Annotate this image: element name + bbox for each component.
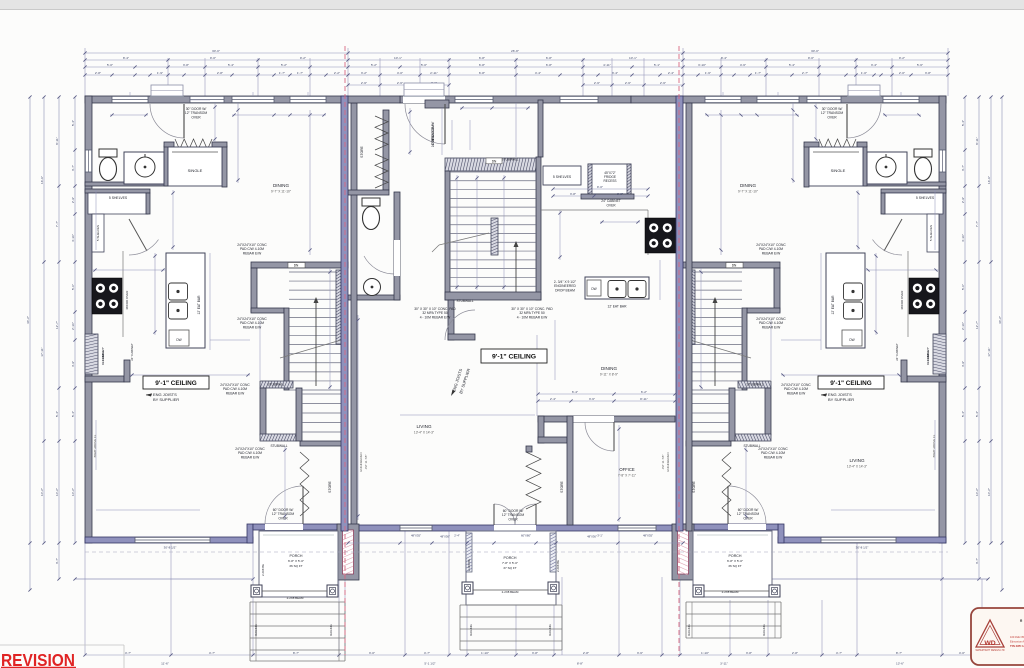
svg-text:2'-2": 2'-2": [334, 71, 340, 75]
svg-text:DROP BEAM: DROP BEAM: [555, 288, 575, 292]
svg-text:4'-6": 4'-6": [740, 63, 746, 67]
svg-text:9'-2": 9'-2": [899, 56, 905, 60]
svg-text:STORE: STORE: [692, 480, 696, 492]
svg-text:5'-4": 5'-4": [55, 411, 59, 417]
svg-text:4'-7": 4'-7": [424, 651, 430, 655]
svg-text:7'-8" X 5'-0": 7'-8" X 5'-0": [502, 561, 518, 565]
svg-text:5'-4": 5'-4": [71, 411, 75, 417]
svg-text:10'-2": 10'-2": [40, 488, 44, 496]
svg-text:2'-0": 2'-0": [899, 71, 905, 75]
svg-text:2'-10": 2'-10": [71, 322, 75, 330]
svg-text:RAILING: RAILING: [329, 623, 333, 635]
svg-text:5'-2": 5'-2": [281, 63, 287, 67]
svg-text:STUBWALL: STUBWALL: [270, 444, 287, 448]
svg-text:2'-8": 2'-8": [217, 71, 223, 75]
svg-text:3'-6": 3'-6": [589, 397, 595, 401]
svg-text:36 SQ FT: 36 SQ FT: [289, 564, 303, 568]
svg-text:DINING: DINING: [273, 183, 290, 188]
svg-text:DN: DN: [294, 264, 299, 268]
svg-text:RECESS: RECESS: [926, 353, 930, 365]
svg-text:16'-6": 16'-6": [40, 176, 44, 184]
svg-text:STORE: STORE: [328, 480, 332, 492]
svg-text:BSMT ABOVE FL: BSMT ABOVE FL: [932, 434, 936, 457]
svg-text:2'-8": 2'-8": [792, 651, 798, 655]
svg-text:2-2X8 BEAM: 2-2X8 BEAM: [722, 590, 739, 594]
svg-text:OVER: OVER: [278, 516, 288, 520]
svg-text:LIVING: LIVING: [416, 424, 431, 429]
svg-text:JST 11 7/8": JST 11 7/8": [364, 455, 368, 470]
svg-text:REBAR E/W: REBAR E/W: [243, 325, 262, 329]
svg-text:44'-2": 44'-2": [998, 316, 1002, 324]
svg-text:8'-7": 8'-7": [896, 651, 902, 655]
svg-text:9'-0": 9'-0": [597, 185, 603, 189]
svg-text:OVER: OVER: [606, 204, 616, 208]
svg-text:3'-6": 3'-6": [637, 651, 643, 655]
svg-text:2'-7": 2'-7": [802, 71, 808, 75]
svg-text:48"X36": 48"X36": [440, 535, 450, 539]
svg-text:5 SHELVES: 5 SHELVES: [96, 225, 100, 241]
svg-text:3'-1": 3'-1": [597, 534, 603, 538]
svg-text:2-2X8 BE: 2-2X8 BE: [556, 560, 560, 572]
svg-text:RAILING: RAILING: [548, 623, 552, 635]
svg-text:6'-8" X 5'-0": 6'-8" X 5'-0": [288, 559, 304, 563]
svg-text:13'-4" X 14'-3": 13'-4" X 14'-3": [847, 464, 867, 468]
svg-text:DW: DW: [176, 338, 181, 342]
svg-text:4'-11": 4'-11": [603, 63, 611, 67]
svg-text:16'-6": 16'-6": [987, 176, 991, 184]
svg-text:PORCH: PORCH: [290, 554, 303, 558]
svg-text:4'-7": 4'-7": [209, 651, 215, 655]
svg-text:3'-10": 3'-10": [698, 63, 706, 67]
svg-text:4'-7": 4'-7": [125, 651, 131, 655]
svg-text:30'-8 1/2": 30'-8 1/2": [856, 546, 869, 550]
svg-text:10'-1": 10'-1": [629, 56, 637, 60]
svg-text:9'-0": 9'-0": [210, 56, 216, 60]
svg-text:9'-1" CEILING: 9'-1" CEILING: [830, 380, 872, 387]
svg-text:60"X80": 60"X80": [521, 534, 531, 538]
svg-text:4'-7": 4'-7": [836, 651, 842, 655]
svg-text:3'-8": 3'-8": [183, 63, 189, 67]
svg-text:8'-11": 8'-11": [55, 137, 59, 145]
svg-text:6'-8": 6'-8": [546, 56, 552, 60]
svg-text:4 - 10M REBAR E/W: 4 - 10M REBAR E/W: [517, 315, 548, 319]
svg-text:STUBWALL: STUBWALL: [743, 444, 760, 448]
svg-text:2'-9": 2'-9": [71, 197, 75, 203]
svg-text:1'-7": 1'-7": [755, 71, 761, 75]
svg-text:10'-1": 10'-1": [394, 56, 402, 60]
svg-text:9'-1" CEILING: 9'-1" CEILING: [492, 353, 536, 360]
svg-text:SINGLE: SINGLE: [188, 168, 203, 173]
svg-text:REBAR E/W: REBAR E/W: [787, 391, 806, 395]
svg-text:DN: DN: [732, 264, 737, 268]
svg-text:5'-4": 5'-4": [961, 120, 965, 126]
svg-text:13'-6": 13'-6": [896, 662, 904, 666]
svg-text:WATERTIGHT DESIGN LTD: WATERTIGHT DESIGN LTD: [975, 649, 1004, 652]
svg-text:9'-1" CEILING: 9'-1" CEILING: [155, 380, 197, 387]
svg-text:3'-8": 3'-8": [570, 192, 576, 196]
svg-text:3'-7": 3'-7": [961, 165, 965, 171]
svg-text:BY SUPPLIER: BY SUPPLIER: [828, 397, 854, 402]
svg-text:6'-4": 6'-4": [572, 390, 578, 394]
svg-text:9'-2": 9'-2": [300, 56, 306, 60]
svg-text:5'-0": 5'-0": [961, 284, 965, 290]
svg-text:RAILING: RAILING: [254, 623, 258, 635]
svg-text:BY SUPPLIER: BY SUPPLIER: [153, 397, 179, 402]
svg-text:2-2X8 BEAM: 2-2X8 BEAM: [287, 596, 304, 600]
svg-text:9'-7" X 11'-10": 9'-7" X 11'-10": [738, 189, 758, 193]
svg-text:RAILING: RAILING: [687, 623, 691, 635]
svg-text:6'-8": 6'-8": [479, 63, 485, 67]
svg-text:STUBWALL: STUBWALL: [746, 383, 763, 387]
svg-text:37 SQ FT: 37 SQ FT: [503, 566, 517, 570]
svg-text:2'-4": 2'-4": [668, 71, 674, 75]
svg-text:5'-2": 5'-2": [371, 63, 377, 67]
svg-text:OVER: OVER: [827, 115, 837, 119]
svg-text:1'-6": 1'-6": [705, 71, 711, 75]
svg-text:3'-2": 3'-2": [361, 71, 367, 75]
svg-text:36 SQ FT: 36 SQ FT: [728, 564, 742, 568]
svg-text:8'-7": 8'-7": [293, 651, 299, 655]
svg-text:24" CABINET: 24" CABINET: [130, 343, 134, 361]
svg-text:RAILING: RAILING: [469, 623, 473, 635]
svg-text:PORCH: PORCH: [729, 554, 742, 558]
svg-text:5'-0": 5'-0": [421, 63, 427, 67]
svg-text:30'-0": 30'-0": [811, 49, 819, 53]
svg-text:3'-4": 3'-4": [871, 63, 877, 67]
svg-text:4'-0": 4'-0": [959, 651, 965, 655]
svg-text:STUBWALL: STUBWALL: [501, 158, 518, 162]
svg-text:3'-8": 3'-8": [746, 651, 752, 655]
svg-text:5'-4": 5'-4": [71, 120, 75, 126]
svg-text:3'-0": 3'-0": [369, 651, 375, 655]
svg-text:24" CABINET: 24" CABINET: [895, 343, 899, 361]
svg-text:5 SHELVES: 5 SHELVES: [916, 196, 935, 200]
svg-text:2'-6": 2'-6": [361, 81, 367, 85]
svg-text:STUBWALL: STUBWALL: [456, 299, 473, 303]
svg-text:2'-4": 2'-4": [454, 534, 460, 538]
svg-text:1'-7": 1'-7": [279, 71, 285, 75]
svg-text:REBAR E/W: REBAR E/W: [241, 455, 260, 459]
svg-text:3'-4": 3'-4": [612, 71, 618, 75]
svg-text:8'-11": 8'-11": [975, 137, 979, 145]
svg-text:DINING: DINING: [740, 183, 757, 188]
svg-text:REBAR E/W: REBAR E/W: [762, 325, 781, 329]
svg-text:5'-0": 5'-0": [71, 284, 75, 290]
svg-text:5 SHELVES: 5 SHELVES: [929, 225, 933, 241]
svg-text:OVER: OVER: [743, 516, 753, 520]
svg-text:2-2X8 BEAM: 2-2X8 BEAM: [502, 590, 519, 594]
svg-text:44'-2": 44'-2": [26, 316, 30, 324]
svg-text:9'-0": 9'-0": [808, 56, 814, 60]
svg-text:T5N 3W5 CA: T5N 3W5 CA: [1010, 644, 1024, 648]
svg-text:2-2X8 BE: 2-2X8 BE: [467, 559, 471, 571]
svg-text:1'-10": 1'-10": [481, 651, 489, 655]
svg-text:REVISION: REVISION: [1, 650, 75, 668]
svg-text:1'-10": 1'-10": [701, 651, 709, 655]
svg-text:OVER: OVER: [431, 135, 435, 145]
svg-text:5'-1": 5'-1": [654, 63, 660, 67]
svg-text:1'-9": 1'-9": [157, 71, 163, 75]
svg-text:DINING: DINING: [601, 366, 618, 371]
svg-text:7'-7": 7'-7": [975, 221, 979, 227]
svg-text:STORE: STORE: [560, 480, 564, 492]
svg-text:DW: DW: [849, 338, 854, 342]
svg-text:STUBWALL: STUBWALL: [267, 383, 284, 387]
svg-text:2'-6": 2'-6": [397, 81, 403, 85]
svg-text:MICRO OVER: MICRO OVER: [125, 291, 129, 310]
svg-text:2'-4": 2'-4": [550, 397, 556, 401]
svg-text:PORCH: PORCH: [504, 556, 517, 560]
svg-text:17'-11": 17'-11": [40, 347, 44, 356]
svg-text:4 - 10M REBAR E/W: 4 - 10M REBAR E/W: [420, 315, 451, 319]
svg-text:5'-4": 5'-4": [961, 411, 965, 417]
svg-text:3'-7": 3'-7": [71, 165, 75, 171]
svg-text:3'-11": 3'-11": [720, 662, 728, 666]
svg-text:30'-8 1/2": 30'-8 1/2": [164, 546, 177, 550]
svg-text:10'-2": 10'-2": [55, 488, 59, 496]
svg-text:3'-8": 3'-8": [925, 71, 931, 75]
svg-text:5'-4": 5'-4": [789, 63, 795, 67]
svg-text:12'-7": 12'-7": [55, 321, 59, 329]
svg-text:REBAR E/W: REBAR E/W: [762, 251, 781, 255]
svg-text:2'-8": 2'-8": [583, 651, 589, 655]
svg-text:100 AVE NW: 100 AVE NW: [1010, 635, 1024, 639]
svg-text:OVER: OVER: [508, 517, 518, 521]
svg-text:8'-8": 8'-8": [577, 662, 583, 666]
svg-text:4'-9": 4'-9": [961, 361, 965, 367]
svg-text:3'-7": 3'-7": [55, 558, 59, 564]
svg-text:4'-9": 4'-9": [71, 361, 75, 367]
svg-text:REBAR E/W: REBAR E/W: [764, 455, 783, 459]
svg-text:17'-11": 17'-11": [987, 347, 991, 356]
svg-text:2'-11": 2'-11": [430, 71, 438, 75]
svg-text:Edmonton AB: Edmonton AB: [1010, 640, 1024, 644]
svg-text:SINGLE: SINGLE: [831, 168, 846, 173]
svg-text:6'-8": 6'-8": [479, 71, 485, 75]
svg-text:11'-6": 11'-6": [161, 662, 169, 666]
svg-text:12' EAT BAR: 12' EAT BAR: [197, 295, 201, 315]
svg-text:DW: DW: [591, 287, 596, 291]
svg-text:6'-8" X 5'-0": 6'-8" X 5'-0": [727, 559, 743, 563]
svg-text:10'-2": 10'-2": [987, 488, 991, 496]
svg-text:6'-8": 6'-8": [546, 63, 552, 67]
svg-text:1'-0": 1'-0": [861, 71, 867, 75]
svg-text:12'-7": 12'-7": [975, 321, 979, 329]
svg-text:MICRO OVER: MICRO OVER: [900, 291, 904, 310]
svg-text:30'-0": 30'-0": [212, 49, 220, 53]
svg-text:3'-8": 3'-8": [532, 651, 538, 655]
svg-text:2'-8": 2'-8": [95, 71, 101, 75]
svg-text:DN: DN: [492, 160, 497, 164]
svg-text:6'-2": 6'-2": [641, 390, 647, 394]
svg-text:2-2X8 BE: 2-2X8 BE: [261, 564, 265, 576]
svg-text:5'-6": 5'-6": [917, 63, 923, 67]
svg-text:REBAR E/W: REBAR E/W: [226, 391, 245, 395]
svg-text:7'-7": 7'-7": [55, 221, 59, 227]
svg-text:OFFICE: OFFICE: [619, 467, 635, 472]
svg-text:10'-2": 10'-2": [975, 488, 979, 496]
svg-text:2'-6": 2'-6": [594, 81, 600, 85]
svg-text:5'-0": 5'-0": [107, 63, 113, 67]
svg-text:2'-6": 2'-6": [625, 81, 631, 85]
svg-text:48"X35": 48"X35": [643, 534, 653, 538]
svg-text:ENGINEERED: ENGINEERED: [359, 452, 363, 471]
svg-text:8'-11": 8'-11": [640, 397, 648, 401]
svg-text:4'-0": 4'-0": [397, 71, 403, 75]
svg-text:26'-8": 26'-8": [511, 49, 519, 53]
svg-text:STORE: STORE: [360, 145, 364, 157]
svg-text:5'-1 1/2": 5'-1 1/2": [424, 662, 435, 666]
svg-text:LIVING: LIVING: [849, 458, 864, 463]
svg-text:8'-4": 8'-4": [123, 56, 129, 60]
svg-text:3'-7": 3'-7": [975, 558, 979, 564]
svg-text:2'-6": 2'-6": [660, 81, 666, 85]
svg-text:ENGINEERED: ENGINEERED: [666, 452, 670, 471]
svg-text:2'-9": 2'-9": [961, 197, 965, 203]
svg-text:1'-7": 1'-7": [297, 71, 303, 75]
svg-text:12' EAT BAR: 12' EAT BAR: [831, 295, 835, 315]
svg-text:9'-11" X 8'-9": 9'-11" X 8'-9": [600, 372, 618, 376]
svg-text:8'-4": 8'-4": [721, 56, 727, 60]
svg-text:OVER: OVER: [191, 115, 201, 119]
svg-text:WD: WD: [984, 640, 995, 647]
svg-text:REBAR E/W: REBAR E/W: [243, 251, 262, 255]
svg-text:JST 11 7/8": JST 11 7/8": [661, 455, 665, 470]
svg-text:BSMT ABOVE FL: BSMT ABOVE FL: [93, 434, 97, 457]
svg-text:24" CABINET: 24" CABINET: [601, 199, 620, 203]
svg-text:2'-10": 2'-10": [961, 322, 965, 330]
svg-text:9'-7" X 11'-10": 9'-7" X 11'-10": [271, 189, 291, 193]
svg-text:RECESS: RECESS: [603, 179, 616, 183]
svg-text:5'-4": 5'-4": [975, 411, 979, 417]
svg-text:48"X36": 48"X36": [587, 535, 597, 539]
svg-text:12' EAT BAR: 12' EAT BAR: [607, 305, 627, 309]
svg-text:5 SHELVES: 5 SHELVES: [109, 196, 128, 200]
svg-text:RECESS: RECESS: [101, 353, 105, 365]
svg-text:8'-0": 8'-0": [617, 192, 623, 196]
svg-text:4'-4": 4'-4": [535, 71, 541, 75]
svg-text:6'-8": 6'-8": [479, 56, 485, 60]
svg-text:RAILING: RAILING: [762, 623, 766, 635]
svg-text:7'-8" X 7'-11": 7'-8" X 7'-11": [618, 473, 636, 477]
svg-text:4'-10": 4'-10": [71, 234, 75, 242]
svg-text:5'-4": 5'-4": [228, 63, 234, 67]
svg-text:5 SHELVES: 5 SHELVES: [553, 175, 572, 179]
svg-text:10'-2": 10'-2": [71, 488, 75, 496]
svg-text:13'-4" X 14'-3": 13'-4" X 14'-3": [414, 430, 434, 434]
svg-text:48"X35": 48"X35": [411, 534, 421, 538]
svg-text:4'-10": 4'-10": [961, 234, 965, 242]
